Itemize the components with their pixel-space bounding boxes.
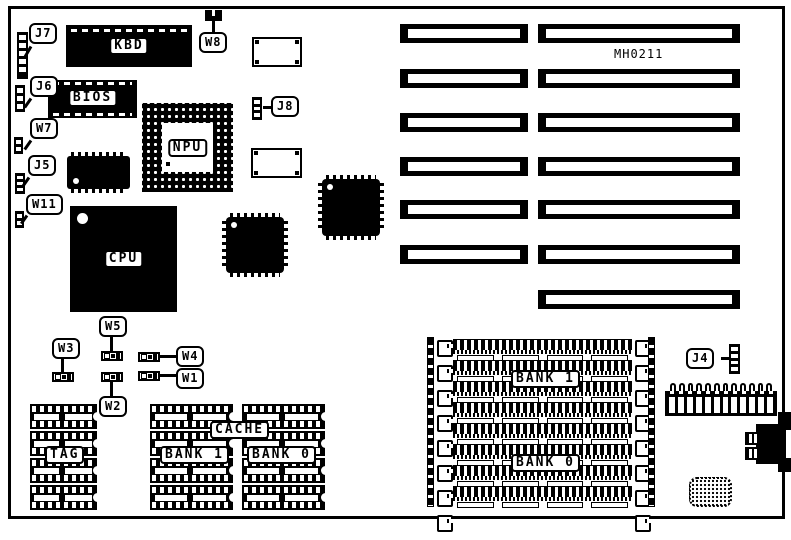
motherboard-diagram-page: { "board": { "id": "MH0211" }, "callouts… [0, 0, 791, 527]
power-pin [723, 397, 729, 413]
isa-slot [538, 69, 740, 88]
pin [254, 107, 260, 111]
pin [16, 140, 21, 144]
pin [17, 188, 23, 191]
power-tab [688, 383, 694, 391]
callout-w5-label: W5 [105, 319, 121, 333]
isa-slot-extension [400, 113, 528, 132]
dip-socket [30, 404, 97, 429]
power-pin [696, 397, 702, 413]
pin [17, 96, 23, 101]
simm-socket [453, 339, 632, 360]
pin-header-j8 [252, 97, 262, 120]
power-tab [749, 383, 755, 391]
w8-jumper-notch [212, 10, 215, 16]
qfp-chip-lower [222, 213, 288, 277]
callout-w1-tail [160, 374, 176, 377]
bios-chip-notch-line-top [53, 82, 132, 85]
callout-w2-label: W2 [105, 399, 121, 413]
callout-w2: W2 [99, 396, 127, 417]
callout-j4-tail [721, 357, 730, 360]
callout-w8-label: W8 [205, 35, 221, 49]
cpu-chip: CPU [70, 206, 177, 312]
power-pin [731, 397, 737, 413]
tag-label: TAG [45, 446, 84, 464]
pin [731, 367, 738, 371]
power-pin [669, 397, 675, 413]
cache-bank0-label: BANK 0 [247, 446, 316, 464]
npu-pin1-mark [166, 162, 170, 166]
board-id: MH0211 [614, 47, 663, 61]
simm-latch [437, 490, 453, 507]
isa-slot [538, 24, 740, 43]
simm-socket [453, 402, 632, 423]
callout-w8: W8 [199, 32, 227, 53]
callout-j4: J4 [686, 348, 714, 369]
power-tab [705, 383, 711, 391]
power-tab [758, 383, 764, 391]
pin [731, 347, 738, 351]
power-tab [679, 383, 685, 391]
qfp-chip-upper-pin1-dot [327, 184, 333, 190]
power-pin [678, 397, 684, 413]
dip-socket [150, 485, 233, 510]
simm-socket [453, 486, 632, 507]
power-tab [723, 383, 729, 391]
power-tab [731, 383, 737, 391]
power-pin [740, 397, 746, 413]
cache-label: CACHE [210, 421, 269, 439]
simm-socket [453, 423, 632, 444]
power-pin [705, 397, 711, 413]
empty-socket-top [252, 37, 302, 67]
pin-header-j4 [729, 344, 740, 374]
bios-chip-label: BIOS [68, 89, 117, 107]
power-tab [696, 383, 702, 391]
cpu-pin1-dot [77, 213, 88, 224]
simm-sockets [453, 339, 632, 507]
cache-bank1-label: BANK 1 [160, 446, 229, 464]
memory-bank1-label: BANK 1 [511, 370, 580, 388]
callout-w1-label: W1 [182, 371, 198, 385]
qfp-chip-upper [318, 175, 384, 240]
simm-latches-left [437, 340, 453, 540]
npu-socket-well: NPU [162, 123, 213, 172]
jumper-w7 [14, 137, 23, 154]
power-connector [665, 383, 777, 416]
simm-latch [437, 390, 453, 407]
pin [16, 147, 21, 151]
callout-w3: W3 [52, 338, 80, 359]
bios-chip: BIOS [48, 80, 137, 118]
pin [17, 176, 23, 179]
isa-slot-extension [400, 24, 528, 43]
simm-rail-left [427, 337, 434, 507]
isa-slot [538, 113, 740, 132]
stippled-component [689, 477, 732, 507]
callout-w3-label: W3 [58, 341, 74, 355]
pin [17, 214, 22, 218]
pin [254, 100, 260, 104]
simm-latch [437, 515, 453, 532]
simm-latch [437, 415, 453, 432]
dip-socket [242, 485, 325, 510]
pin [254, 113, 260, 117]
jumper-w1 [138, 371, 160, 381]
keyboard-din-connector-step-bottom [778, 458, 791, 472]
callout-w5: W5 [99, 316, 127, 337]
simm-latch [635, 515, 651, 532]
callout-w11: W11 [26, 194, 63, 215]
keyboard-din-connector-step-top [778, 412, 791, 430]
callout-j6-label: J6 [36, 79, 52, 93]
pin [731, 361, 738, 365]
kbd-chip-label: KBD [109, 37, 148, 55]
pin [19, 35, 26, 40]
isa-slot [538, 245, 740, 264]
power-pin [767, 397, 773, 413]
kbd-chip: KBD [66, 25, 192, 67]
npu-label: NPU [168, 139, 207, 157]
callout-j8-label: J8 [277, 99, 293, 113]
power-tab [766, 383, 772, 391]
simm-bank-block: BANK 1 BANK 0 [427, 337, 655, 507]
power-pin [714, 397, 720, 413]
jumper-w4 [138, 352, 160, 362]
ic-chip-body [67, 156, 130, 189]
callout-j7: J7 [29, 23, 57, 44]
callout-w7: W7 [30, 118, 58, 139]
callout-w3-tail [61, 359, 64, 372]
memory-bank0-label: BANK 0 [511, 454, 580, 472]
ic-chip [67, 152, 130, 193]
simm-rail-right [648, 337, 655, 507]
isa-slot [538, 200, 740, 219]
power-tab [740, 383, 746, 391]
cpu-label: CPU [104, 250, 143, 268]
isa-slot [538, 157, 740, 176]
callout-w2-tail [110, 382, 113, 396]
w8-jumper-block [205, 10, 222, 21]
ic-chip-pin1-dot [73, 178, 79, 184]
simm-latch [437, 340, 453, 357]
simm-latch [437, 440, 453, 457]
isa-slot-extension [400, 200, 528, 219]
simm-latch [437, 365, 453, 382]
isa-slot-8bit [538, 290, 740, 309]
callout-j5: J5 [28, 155, 56, 176]
bios-chip-notch-line-bottom [53, 113, 132, 116]
empty-socket-middle [251, 148, 302, 178]
power-tab [670, 383, 676, 391]
jumper-w5 [101, 351, 123, 361]
power-connector-tabs [665, 383, 777, 391]
dip-socket [30, 485, 97, 510]
callout-j5-label: J5 [34, 158, 50, 172]
callout-j7-label: J7 [35, 26, 51, 40]
callout-w1: W1 [176, 368, 204, 389]
qfp-chip-lower-pin1-dot [231, 222, 237, 228]
power-pin [749, 397, 755, 413]
power-pin [758, 397, 764, 413]
pin [19, 43, 26, 48]
isa-slot-extension [400, 69, 528, 88]
power-tab [714, 383, 720, 391]
pin [17, 88, 23, 93]
power-pin [687, 397, 693, 413]
callout-j8: J8 [271, 96, 299, 117]
callout-w4-label: W4 [182, 349, 198, 363]
callout-w5-tail [110, 337, 113, 351]
din-pin-block-bottom [745, 447, 760, 460]
isa-slot-extension [400, 245, 528, 264]
din-pin-block-top [745, 432, 760, 445]
jumper-w3 [52, 372, 74, 382]
kbd-chip-notch-line [71, 29, 187, 32]
pin [19, 67, 26, 72]
callout-j4-label: J4 [692, 351, 708, 365]
power-connector-pins [665, 394, 777, 416]
isa-slot-extension [400, 157, 528, 176]
jumper-w2 [101, 372, 123, 382]
pin [19, 59, 26, 64]
npu-socket: NPU [142, 103, 233, 192]
callout-w4: W4 [176, 346, 204, 367]
pin-header-j6 [15, 85, 25, 112]
pin [731, 354, 738, 358]
callout-w11-label: W11 [32, 197, 57, 211]
simm-latch [437, 465, 453, 482]
callout-w4-tail [160, 355, 176, 358]
pin [17, 104, 23, 109]
callout-w7-label: W7 [36, 121, 52, 135]
callout-j6: J6 [30, 76, 58, 97]
